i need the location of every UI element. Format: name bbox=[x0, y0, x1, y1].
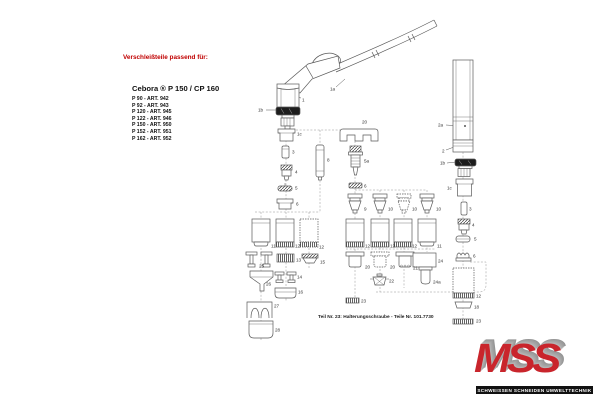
part-label-5: 5 bbox=[295, 186, 298, 191]
part-label-20: 20 bbox=[362, 120, 367, 125]
part-label-12: 12 bbox=[412, 244, 417, 249]
center-top-parts bbox=[316, 129, 378, 180]
part-label-26: 26 bbox=[266, 282, 271, 287]
hand-torch-drawing bbox=[276, 20, 437, 129]
part-label-15: 15 bbox=[320, 260, 325, 265]
part-label-23: 23 bbox=[361, 299, 366, 304]
part-label-3: 3 bbox=[292, 150, 295, 155]
footnote-part23: Teil Nr. 23: Halterungsschraube - Teile … bbox=[318, 315, 434, 320]
part-label-1c: 1c bbox=[297, 132, 302, 137]
part-label-5a: 5a bbox=[364, 159, 369, 164]
part-label-11: 11 bbox=[437, 244, 442, 249]
part-label-12: 12 bbox=[295, 244, 300, 249]
part-label-24: 24 bbox=[438, 259, 443, 264]
part-label-2: 2 bbox=[442, 149, 445, 154]
part-label-27: 27 bbox=[274, 304, 279, 309]
part-label-24a: 24a bbox=[433, 280, 441, 285]
part-label-5: 5 bbox=[474, 237, 477, 242]
part-label-28: 28 bbox=[275, 328, 280, 333]
mss-logo-text: MSS bbox=[474, 336, 557, 382]
catalog-page: Verschleißteile passend für: Cebora ® P … bbox=[0, 0, 600, 400]
part-label-23: 23 bbox=[476, 319, 481, 324]
part-label-16: 16 bbox=[298, 290, 303, 295]
part-label-14: 14 bbox=[297, 275, 302, 280]
part-label-6: 6 bbox=[296, 202, 299, 207]
part-label-2a: 2a bbox=[438, 123, 443, 128]
part-label-12: 12 bbox=[319, 245, 324, 250]
part-label-1: 1 bbox=[302, 98, 305, 103]
machine-torch-column bbox=[453, 60, 476, 324]
mss-logo-tagline: SCHWEISSEN SCHNEIDEN UMWELTTECHNIK bbox=[477, 388, 591, 393]
part-label-21: 21 bbox=[413, 266, 418, 271]
part-label-20: 20 bbox=[365, 265, 370, 270]
torch-head bbox=[277, 84, 299, 108]
electrode-5a-column bbox=[349, 146, 363, 188]
part-label-6: 6 bbox=[364, 184, 367, 189]
part-label-10: 10 bbox=[412, 207, 417, 212]
part-label-8: 8 bbox=[327, 158, 330, 163]
part-label-1b: 1b bbox=[440, 161, 445, 166]
part-label-20: 20 bbox=[390, 265, 395, 270]
holder-cup-row-left bbox=[252, 219, 318, 247]
part-label-18: 18 bbox=[474, 305, 479, 310]
hand-torch-parts-column bbox=[277, 129, 295, 209]
part-label-1a: 1a bbox=[330, 87, 335, 92]
part-label-25: 25 bbox=[259, 264, 264, 269]
part-label-12: 12 bbox=[476, 294, 481, 299]
mss-logo: MSS SCHWEISSEN SCHNEIDEN UMWELTTECHNIK bbox=[470, 342, 596, 396]
part-label-4: 4 bbox=[295, 170, 298, 175]
part-label-22: 22 bbox=[389, 279, 394, 284]
part-label-11: 11 bbox=[271, 244, 276, 249]
part-label-6: 6 bbox=[473, 254, 476, 259]
part-label-4: 4 bbox=[472, 223, 475, 228]
part-label-3: 3 bbox=[469, 207, 472, 212]
part-label-13: 13 bbox=[296, 258, 301, 263]
part-label-10: 10 bbox=[388, 207, 393, 212]
part-label-12: 12 bbox=[390, 244, 395, 249]
part-label-1c: 1c bbox=[447, 186, 452, 191]
part-label-1b: 1b bbox=[258, 108, 263, 113]
mss-logo-banner: SCHWEISSEN SCHNEIDEN UMWELTTECHNIK bbox=[476, 386, 593, 394]
part-label-9: 9 bbox=[364, 207, 367, 212]
part-label-10: 10 bbox=[436, 207, 441, 212]
spacer-parts-left bbox=[246, 252, 318, 338]
retaining-ring-1b bbox=[276, 107, 300, 115]
shield-row bbox=[346, 252, 436, 303]
part-label-12: 12 bbox=[365, 244, 370, 249]
